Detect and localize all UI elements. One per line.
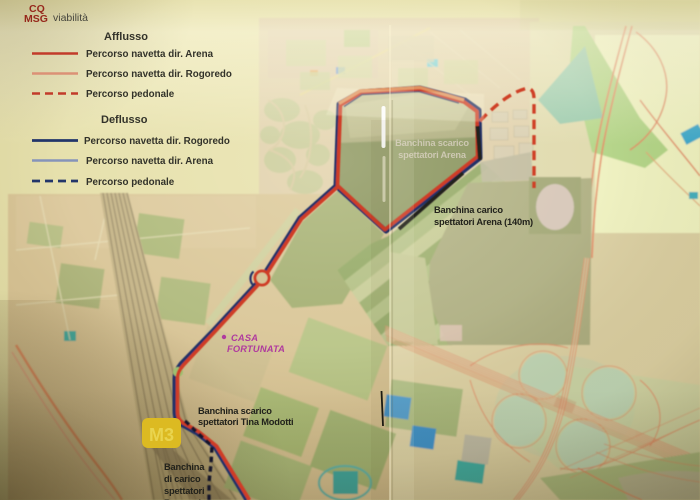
svg-text:Percorso pedonale: Percorso pedonale: [86, 89, 175, 100]
svg-text:Percorso navetta dir. Rogoredo: Percorso navetta dir. Rogoredo: [84, 136, 230, 147]
svg-text:Deflusso: Deflusso: [101, 114, 148, 126]
svg-text:FORTUNATA: FORTUNATA: [227, 344, 285, 354]
svg-text:Afflusso: Afflusso: [104, 31, 148, 43]
svg-text:Banchina carico: Banchina carico: [434, 205, 503, 215]
svg-text:Percorso navetta dir. Rogoredo: Percorso navetta dir. Rogoredo: [86, 69, 232, 80]
svg-text:spettatori Tina Modotti: spettatori Tina Modotti: [198, 417, 293, 427]
svg-text:Percorso navetta dir. Arena: Percorso navetta dir. Arena: [86, 49, 214, 60]
svg-text:di carico: di carico: [164, 474, 201, 484]
svg-text:Banchina scarico: Banchina scarico: [198, 406, 272, 416]
svg-text:CASA: CASA: [231, 333, 258, 343]
svg-text:Banchina: Banchina: [164, 462, 205, 472]
svg-text:M3: M3: [149, 425, 174, 445]
svg-text:Percorso pedonale: Percorso pedonale: [86, 177, 175, 188]
svg-text:spettatori Arena (140m): spettatori Arena (140m): [434, 217, 533, 227]
svg-text:viabilità: viabilità: [53, 12, 88, 24]
svg-text:MSG: MSG: [24, 13, 48, 25]
svg-text:spettatori: spettatori: [164, 486, 204, 496]
svg-text:Percorso navetta dir. Arena: Percorso navetta dir. Arena: [86, 156, 214, 167]
